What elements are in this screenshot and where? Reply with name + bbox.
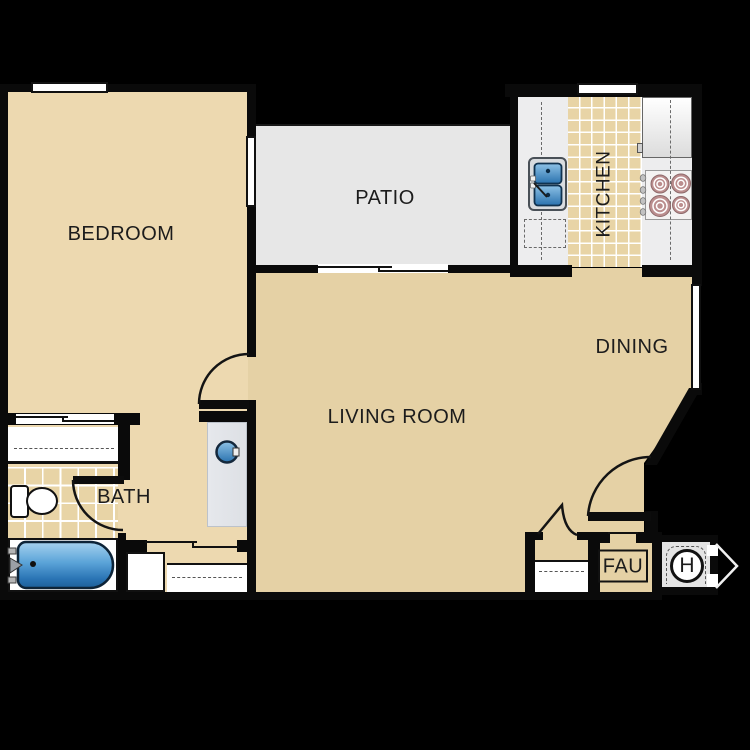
bedroom-label: BEDROOM <box>68 224 175 244</box>
stove-knob <box>640 209 646 216</box>
tub-handle <box>8 577 16 583</box>
bath-label: BATH <box>97 487 151 507</box>
coat-closet-door <box>538 505 577 535</box>
burner <box>650 196 671 217</box>
stove-knob <box>640 187 646 194</box>
bedroom-door-arc <box>199 354 249 404</box>
living-room-label: LIVING ROOM <box>328 407 467 427</box>
vanity-sink <box>217 442 240 463</box>
sink-faucet <box>531 176 536 181</box>
burner <box>673 197 690 214</box>
entry-door-arc <box>588 457 651 516</box>
dining-label: DINING <box>596 337 669 357</box>
patio-label: PATIO <box>355 188 415 208</box>
stove-knob <box>640 175 646 182</box>
burner <box>651 175 669 193</box>
burner <box>672 174 691 193</box>
kitchen-label: KITCHEN <box>595 151 614 238</box>
bathtub <box>8 542 113 588</box>
kitchen-sink <box>529 158 566 210</box>
tub-handle <box>8 548 16 554</box>
water-heater-exterior-door <box>716 544 737 588</box>
stove-knob <box>640 198 646 205</box>
floor-plan: FAU H <box>0 0 750 750</box>
vanity-faucet <box>233 448 239 456</box>
tub-drain <box>30 561 36 567</box>
toilet <box>11 486 57 517</box>
stove-burners <box>640 174 690 217</box>
fixtures-layer <box>0 0 750 750</box>
